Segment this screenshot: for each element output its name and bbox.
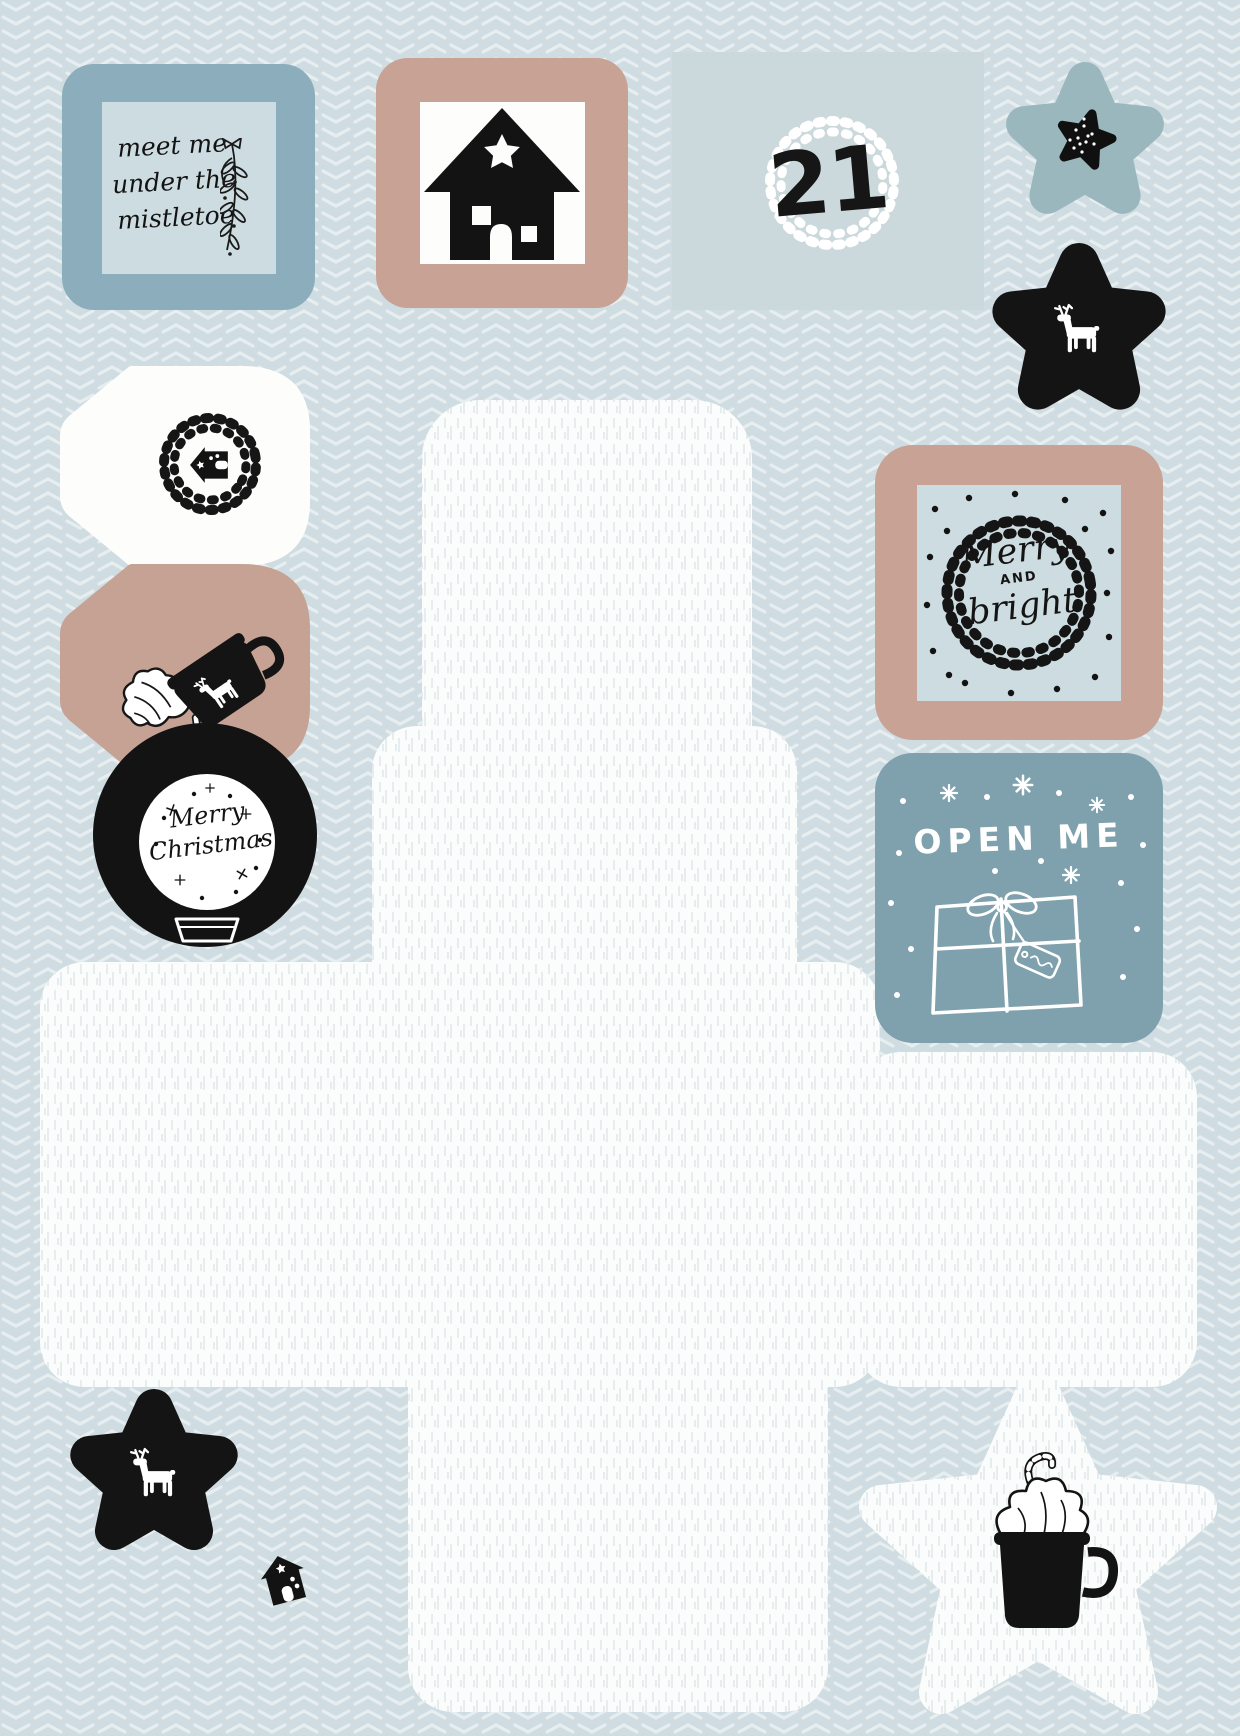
puffy-star-icon: [1012, 263, 1145, 390]
globe-base: [176, 919, 238, 941]
day-number: 21: [661, 39, 994, 323]
gift-tag-white: [58, 364, 314, 570]
mistletoe-tile-inner: meet me under the mistletoe: [102, 102, 276, 274]
tiny-house-sticker: [246, 1538, 322, 1622]
house-tile: [376, 58, 628, 308]
mug-handle: [1083, 1552, 1113, 1594]
star-mug-sticker: [948, 1448, 1138, 1658]
merry-bright-inner: Merry AND bright: [917, 485, 1121, 701]
house-tile-inner: [420, 102, 585, 264]
open-me-tile: OPEN ME: [875, 753, 1163, 1043]
puffy-star-icon: [89, 1408, 218, 1531]
black-star-sticker-top: [964, 228, 1194, 443]
mini-house-icon: [256, 1550, 311, 1607]
open-me-art: [875, 753, 1163, 1043]
black-star-sticker-bottom: [44, 1378, 269, 1588]
tag-shape: [66, 372, 304, 560]
gift-tag-mini-icon: [1014, 941, 1062, 979]
day-number-wrap: 21: [672, 52, 984, 310]
house-icon: [420, 102, 585, 264]
merry-bright-tile: Merry AND bright: [875, 445, 1163, 740]
mistletoe-sprig-icon: [220, 138, 274, 264]
printable-sheet: meet me under the mistletoe: [0, 0, 1240, 1736]
whipped-cream-icon: [997, 1479, 1088, 1536]
gift-box-icon: [933, 889, 1081, 1013]
blue-star-sticker: [978, 44, 1193, 249]
cocoa-mug-icon: [994, 1456, 1113, 1628]
mistletoe-tile: meet me under the mistletoe: [62, 64, 315, 310]
